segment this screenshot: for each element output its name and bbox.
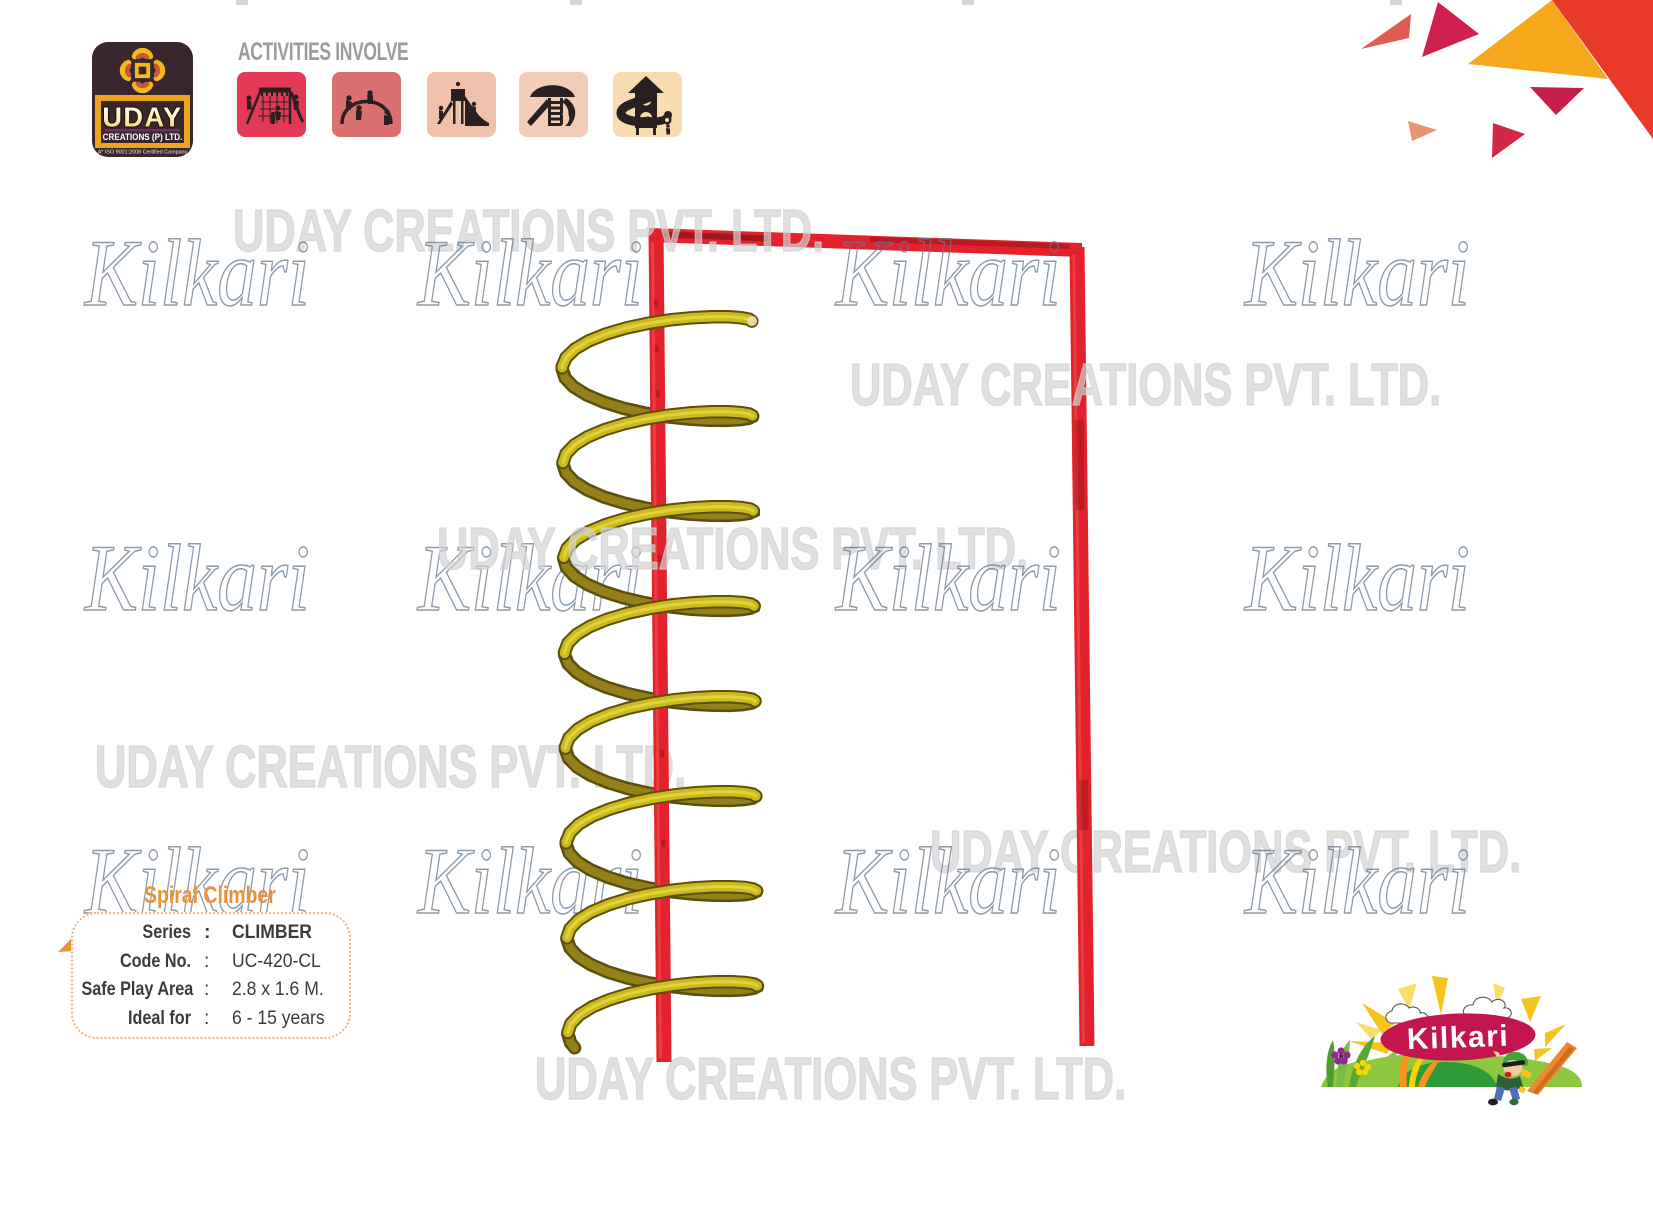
svg-text:CREATIONS (P) LTD.: CREATIONS (P) LTD.	[103, 132, 183, 143]
svg-text:UDAY: UDAY	[102, 101, 182, 132]
svg-text:A* ISO 9001:2008 Certified Com: A* ISO 9001:2008 Certified Company	[98, 150, 188, 156]
